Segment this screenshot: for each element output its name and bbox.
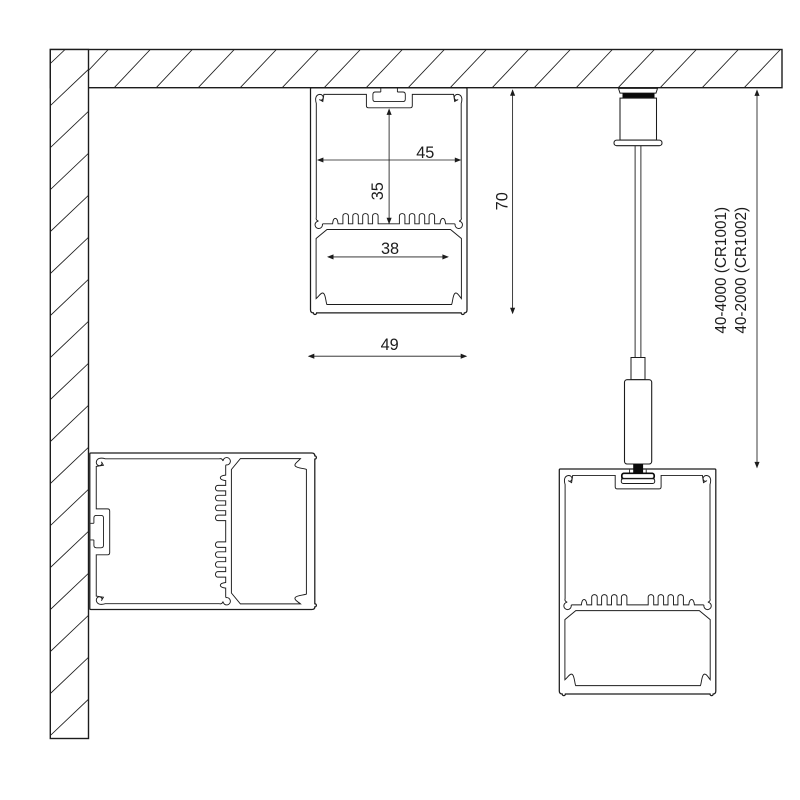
svg-text:70: 70 <box>494 192 512 210</box>
svg-text:49: 49 <box>381 336 399 354</box>
svg-text:40-2000 (CR1002): 40-2000 (CR1002) <box>733 207 750 334</box>
svg-text:35: 35 <box>369 182 387 200</box>
svg-text:38: 38 <box>381 240 399 258</box>
svg-text:40-4000 (CR1001): 40-4000 (CR1001) <box>713 207 730 334</box>
svg-text:45: 45 <box>416 144 434 162</box>
